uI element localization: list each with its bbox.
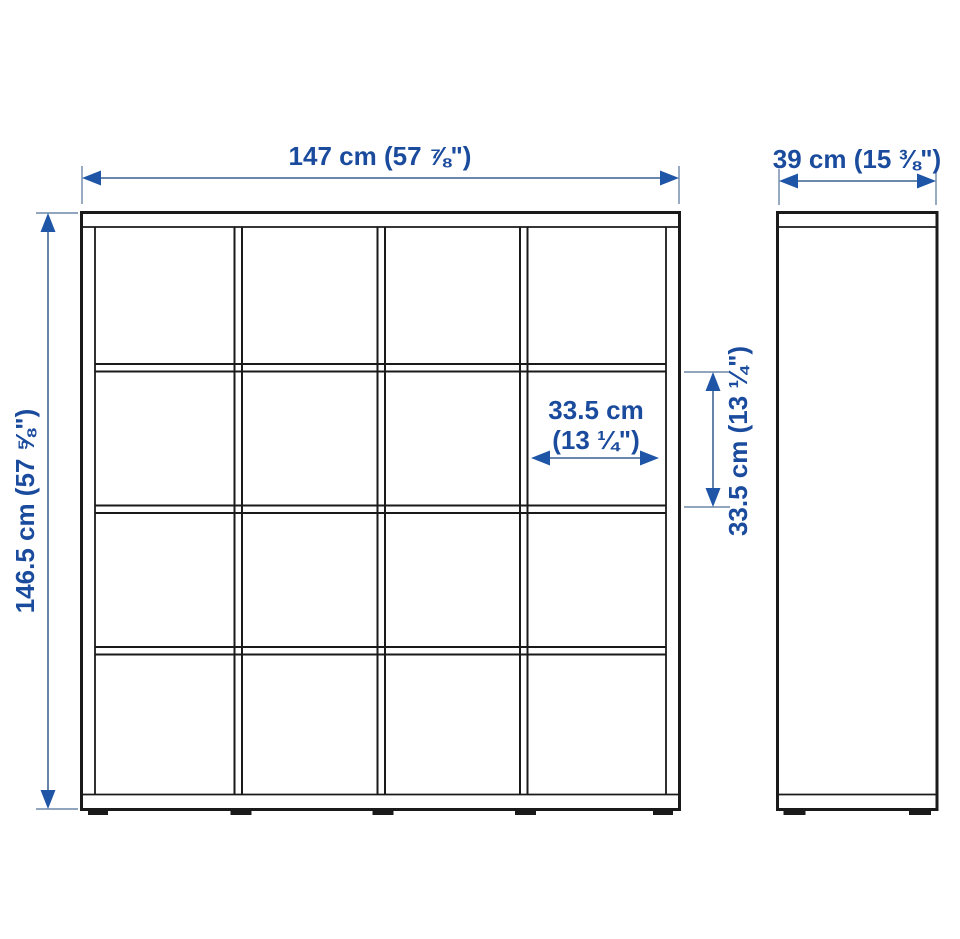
front-view bbox=[82, 213, 680, 816]
side-view-outline bbox=[778, 213, 938, 810]
arrowhead-left-icon bbox=[779, 174, 798, 189]
dimension-overall-width: 147 cm (57 ⅞") bbox=[82, 141, 679, 204]
foot bbox=[784, 810, 806, 816]
foot bbox=[909, 810, 931, 816]
cell-width-label-line1: 33.5 cm bbox=[548, 395, 643, 425]
foot bbox=[653, 810, 673, 816]
dimension-depth: 39 cm (15 ⅜") bbox=[773, 144, 941, 205]
foot bbox=[231, 810, 252, 816]
overall-height-label: 146.5 cm (57 ⅝") bbox=[10, 409, 40, 614]
arrowhead-right-icon bbox=[660, 171, 679, 186]
arrowhead-down-icon bbox=[41, 790, 56, 809]
side-view bbox=[778, 213, 938, 816]
cell-width-label-line2: (13 ¼") bbox=[552, 425, 639, 455]
foot bbox=[373, 810, 394, 816]
overall-width-label: 147 cm (57 ⅞") bbox=[289, 141, 472, 171]
arrowhead-left-icon bbox=[82, 171, 101, 186]
foot bbox=[88, 810, 108, 816]
arrowhead-up-icon bbox=[706, 372, 721, 391]
arrowhead-down-icon bbox=[706, 488, 721, 507]
arrowhead-right-icon bbox=[917, 174, 936, 189]
depth-label: 39 cm (15 ⅜") bbox=[773, 144, 941, 174]
arrowhead-up-icon bbox=[41, 213, 56, 232]
cell-height-label: 33.5 cm (13 ¼") bbox=[723, 346, 753, 536]
product-dimension-image: 147 cm (57 ⅞") 146.5 cm (57 ⅝") 39 cm (1… bbox=[0, 0, 960, 939]
foot bbox=[515, 810, 536, 816]
dimension-diagram: 147 cm (57 ⅞") 146.5 cm (57 ⅝") 39 cm (1… bbox=[0, 0, 960, 939]
front-view-outline bbox=[82, 213, 680, 810]
dimension-overall-height: 146.5 cm (57 ⅝") bbox=[10, 213, 78, 809]
dimension-cell-height: 33.5 cm (13 ¼") bbox=[684, 346, 753, 536]
